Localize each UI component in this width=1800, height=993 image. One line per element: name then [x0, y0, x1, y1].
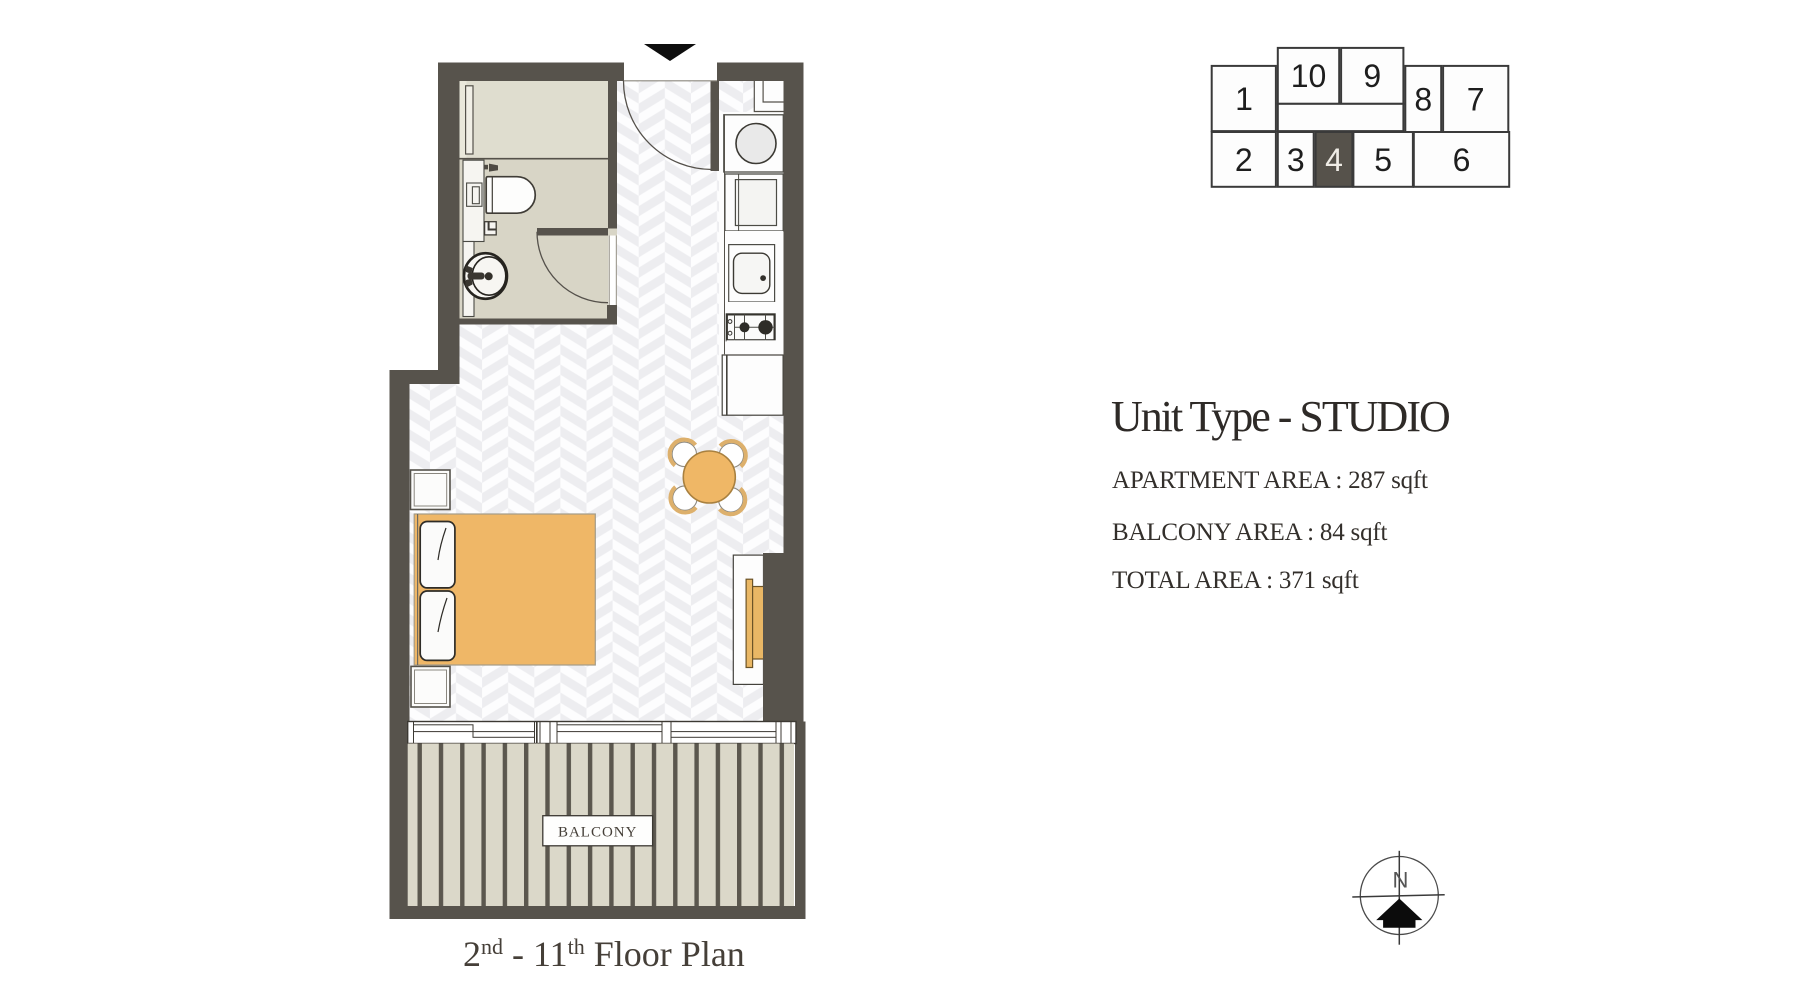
svg-text:APARTMENT AREA : 287 sqft: APARTMENT AREA : 287 sqft	[1112, 467, 1428, 494]
svg-text:5: 5	[1374, 142, 1392, 178]
svg-text:2: 2	[1235, 142, 1253, 178]
svg-text:10: 10	[1291, 58, 1327, 94]
svg-text:Unit Type - STUDIO: Unit Type - STUDIO	[1111, 392, 1449, 441]
svg-text:2nd - 11th Floor Plan: 2nd - 11th Floor Plan	[463, 934, 745, 974]
svg-text:4: 4	[1325, 142, 1343, 178]
svg-text:N: N	[1393, 868, 1409, 893]
svg-text:8: 8	[1414, 82, 1432, 118]
svg-text:6: 6	[1453, 142, 1471, 178]
svg-text:7: 7	[1467, 82, 1485, 118]
svg-text:TOTAL AREA : 371 sqft: TOTAL AREA : 371 sqft	[1112, 567, 1359, 594]
svg-text:BALCONY: BALCONY	[558, 825, 638, 841]
svg-text:3: 3	[1287, 142, 1305, 178]
svg-text:9: 9	[1363, 58, 1381, 94]
svg-text:1: 1	[1235, 81, 1253, 117]
svg-text:BALCONY AREA : 84 sqft: BALCONY AREA : 84 sqft	[1112, 519, 1388, 546]
